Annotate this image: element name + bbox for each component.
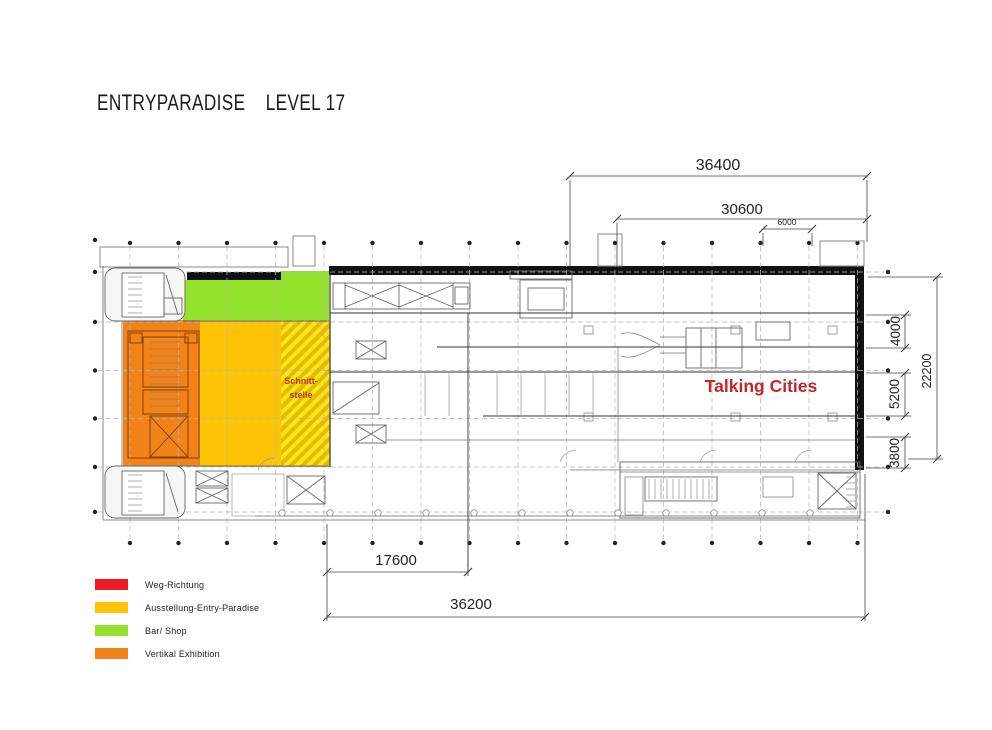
wall-right [855,266,864,470]
dim-bottom-inner: 17600 [346,552,446,569]
legend-label-bar-shop: Bar/ Shop [145,626,187,636]
dim-top-overall: 36400 [668,157,768,175]
legend-item-vertikal-exhibition: Vertikal Exhibition [95,642,259,665]
wall-top-right [329,266,862,275]
legend-label-ausstellung: Ausstellung-Entry-Paradise [145,603,259,613]
legend-item-ausstellung: Ausstellung-Entry-Paradise [95,596,259,619]
legend-swatch-ausstellung [95,602,128,613]
title-level: LEVEL 17 [266,90,346,115]
talking-cities-label: Talking Cities [690,376,832,397]
dim-right-upper: 4000 [888,308,904,354]
schnittstelle-line1: Schnitt- [274,374,328,388]
legend-swatch-bar-shop [95,625,128,636]
dim-right-middle: 5200 [887,371,903,417]
legend-item-weg-richtung: Weg-Richtung [95,573,259,596]
dim-right-lower: 3800 [887,430,903,476]
legend-label-vertikal-exhibition: Vertikal Exhibition [145,649,220,659]
interior-walls [330,276,855,572]
dim-top-inner: 30600 [692,201,792,218]
title-project: ENTRYPARADISE [97,90,245,115]
legend-swatch-vertikal-exhibition [95,648,128,659]
legend-swatch-weg-richtung [95,579,128,590]
legend-label-weg-richtung: Weg-Richtung [145,580,204,590]
dim-right-overall: 22200 [919,343,935,399]
schnittstelle-line2: stelle [274,388,328,402]
schnittstelle-label: Schnitt- stelle [274,374,328,403]
wall-top-left [187,272,281,280]
zone-bar-shop-notch [280,271,329,321]
dim-top-bay: 6000 [762,217,812,227]
page-title: ENTRYPARADISELEVEL 17 [97,90,345,116]
zone-ausstellung [200,320,281,467]
zone-vertikal-exhibition [123,320,200,466]
legend: Weg-Richtung Ausstellung-Entry-Paradise … [95,573,259,665]
dim-bottom-overall: 36200 [421,596,521,613]
legend-item-bar-shop: Bar/ Shop [95,619,259,642]
floor-plan-page: ENTRYPARADISELEVEL 17 [0,0,992,730]
